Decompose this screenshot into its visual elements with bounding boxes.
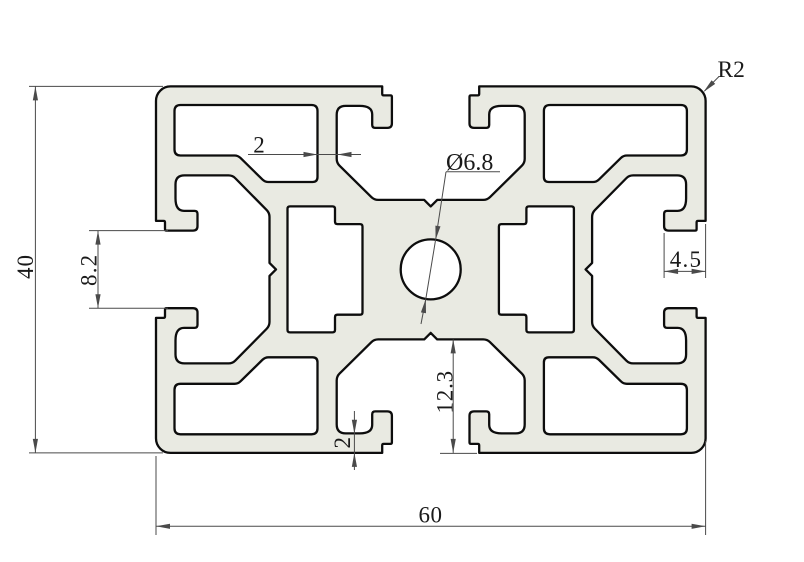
svg-text:8.2: 8.2 — [77, 254, 102, 286]
svg-text:R2: R2 — [718, 57, 745, 83]
svg-text:2: 2 — [253, 133, 264, 158]
svg-text:2: 2 — [330, 437, 355, 449]
svg-text:4.5: 4.5 — [670, 247, 702, 272]
svg-text:60: 60 — [419, 502, 443, 527]
svg-text:12.3: 12.3 — [432, 370, 457, 413]
svg-text:40: 40 — [13, 254, 38, 279]
